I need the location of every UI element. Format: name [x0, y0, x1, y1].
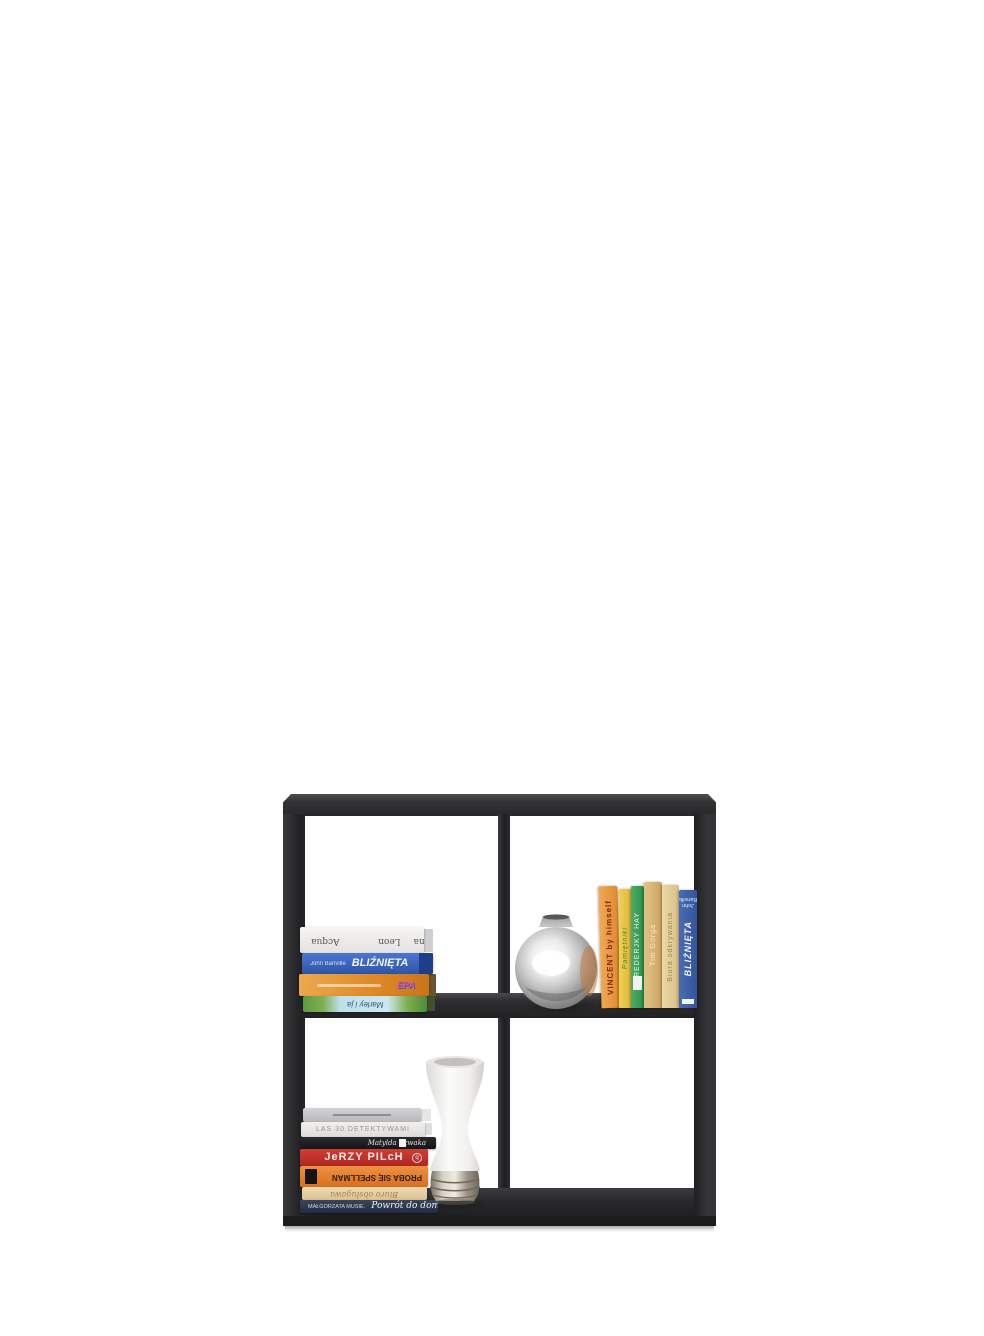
book-spine-block: [305, 1169, 317, 1184]
book-spine-label: [399, 1139, 406, 1147]
book-vincent: VINCENT by himself: [598, 886, 620, 1008]
book-spine-text: BLIŹNIĘTA: [684, 921, 693, 976]
product-photo: Donna Leon Acqua alta John Banville BLIŹ…: [0, 0, 984, 1336]
bookcase-right-panel: [694, 814, 716, 1216]
book-author: John Banville: [310, 961, 346, 967]
book-spine-text: Marley i ja: [347, 1000, 383, 1008]
book-orange: EPA: [299, 974, 429, 996]
book-end-label: [682, 999, 694, 1004]
book-powrot-do-domu: MAŁGORZATA MUSIE. Powrót do domu →: [300, 1200, 438, 1213]
book-spine-text: VINCENT by himself: [604, 899, 614, 994]
book-spine-text: BLIŹNIĘTA: [352, 958, 409, 969]
book-spine-text: Biura odkrywania: [667, 912, 674, 982]
book-spine-text: Tim Gorga: [650, 924, 657, 966]
book-black: Matylda Szwaka: [301, 1137, 436, 1149]
publisher-logo: EPA: [397, 981, 415, 990]
book-spine-text: Donna Leon Acqua alta: [300, 936, 424, 945]
book-blizhnieta-vertical: John Banville BLIŹNIĘTA: [679, 890, 697, 1008]
book-marley-i-ja: Marley i ja: [303, 996, 427, 1012]
white-vase: [420, 1051, 490, 1211]
book-spine-ornament: [333, 1114, 391, 1116]
book-blizhnieta-horizontal: John Banville BLIŹNIĘTA: [302, 953, 433, 974]
book-gray: [303, 1108, 421, 1122]
book-author: John Banville: [679, 896, 697, 908]
book-cover-label: [633, 976, 642, 990]
book-acqua-alta: Donna Leon Acqua alta: [300, 927, 424, 953]
bookcase-top-panel: [283, 794, 716, 816]
book-beige: Biuro obsługawa: [302, 1187, 427, 1200]
book-spine-text: PROBA SIĘ SPELLMAN: [332, 1173, 422, 1181]
book-spine-ornament: [317, 984, 381, 987]
book-pamietniki: Pamiętniki: [619, 889, 631, 1008]
book-spine-text: Pamiętniki: [622, 927, 629, 969]
bookcase-base-highlight: [285, 1226, 714, 1232]
book-spine-text: Matylda Szwaka: [368, 1140, 426, 1147]
page-edge: [423, 929, 433, 952]
book-end-cap: [419, 953, 433, 974]
book-spellman: PROBA SIĘ SPELLMAN: [300, 1166, 428, 1187]
book-green: FREDERJKY HAY: [631, 886, 644, 1008]
silver-vase: [513, 913, 601, 1012]
book-spine-text: FREDERJKY HAY: [634, 912, 641, 982]
book-tan: Tim Gorga: [644, 882, 662, 1008]
book-author: MAŁGORZATA MUSIE.: [308, 1204, 365, 1210]
book-cream: Biura odkrywania: [662, 885, 679, 1008]
book-las-detektywami: LAS 30 DETEKTYWAMI: [301, 1122, 425, 1137]
bookcase-bottom-panel: [283, 1216, 716, 1226]
book-spine-text: LAS 30 DETEKTYWAMI: [316, 1126, 410, 1133]
book-jerzy-pilch: JeRZY PILcH q: [300, 1149, 428, 1166]
book-spine-text: JeRZY PILcH: [324, 1152, 403, 1163]
book-spine-text: Biuro obsługawa: [330, 1190, 398, 1198]
